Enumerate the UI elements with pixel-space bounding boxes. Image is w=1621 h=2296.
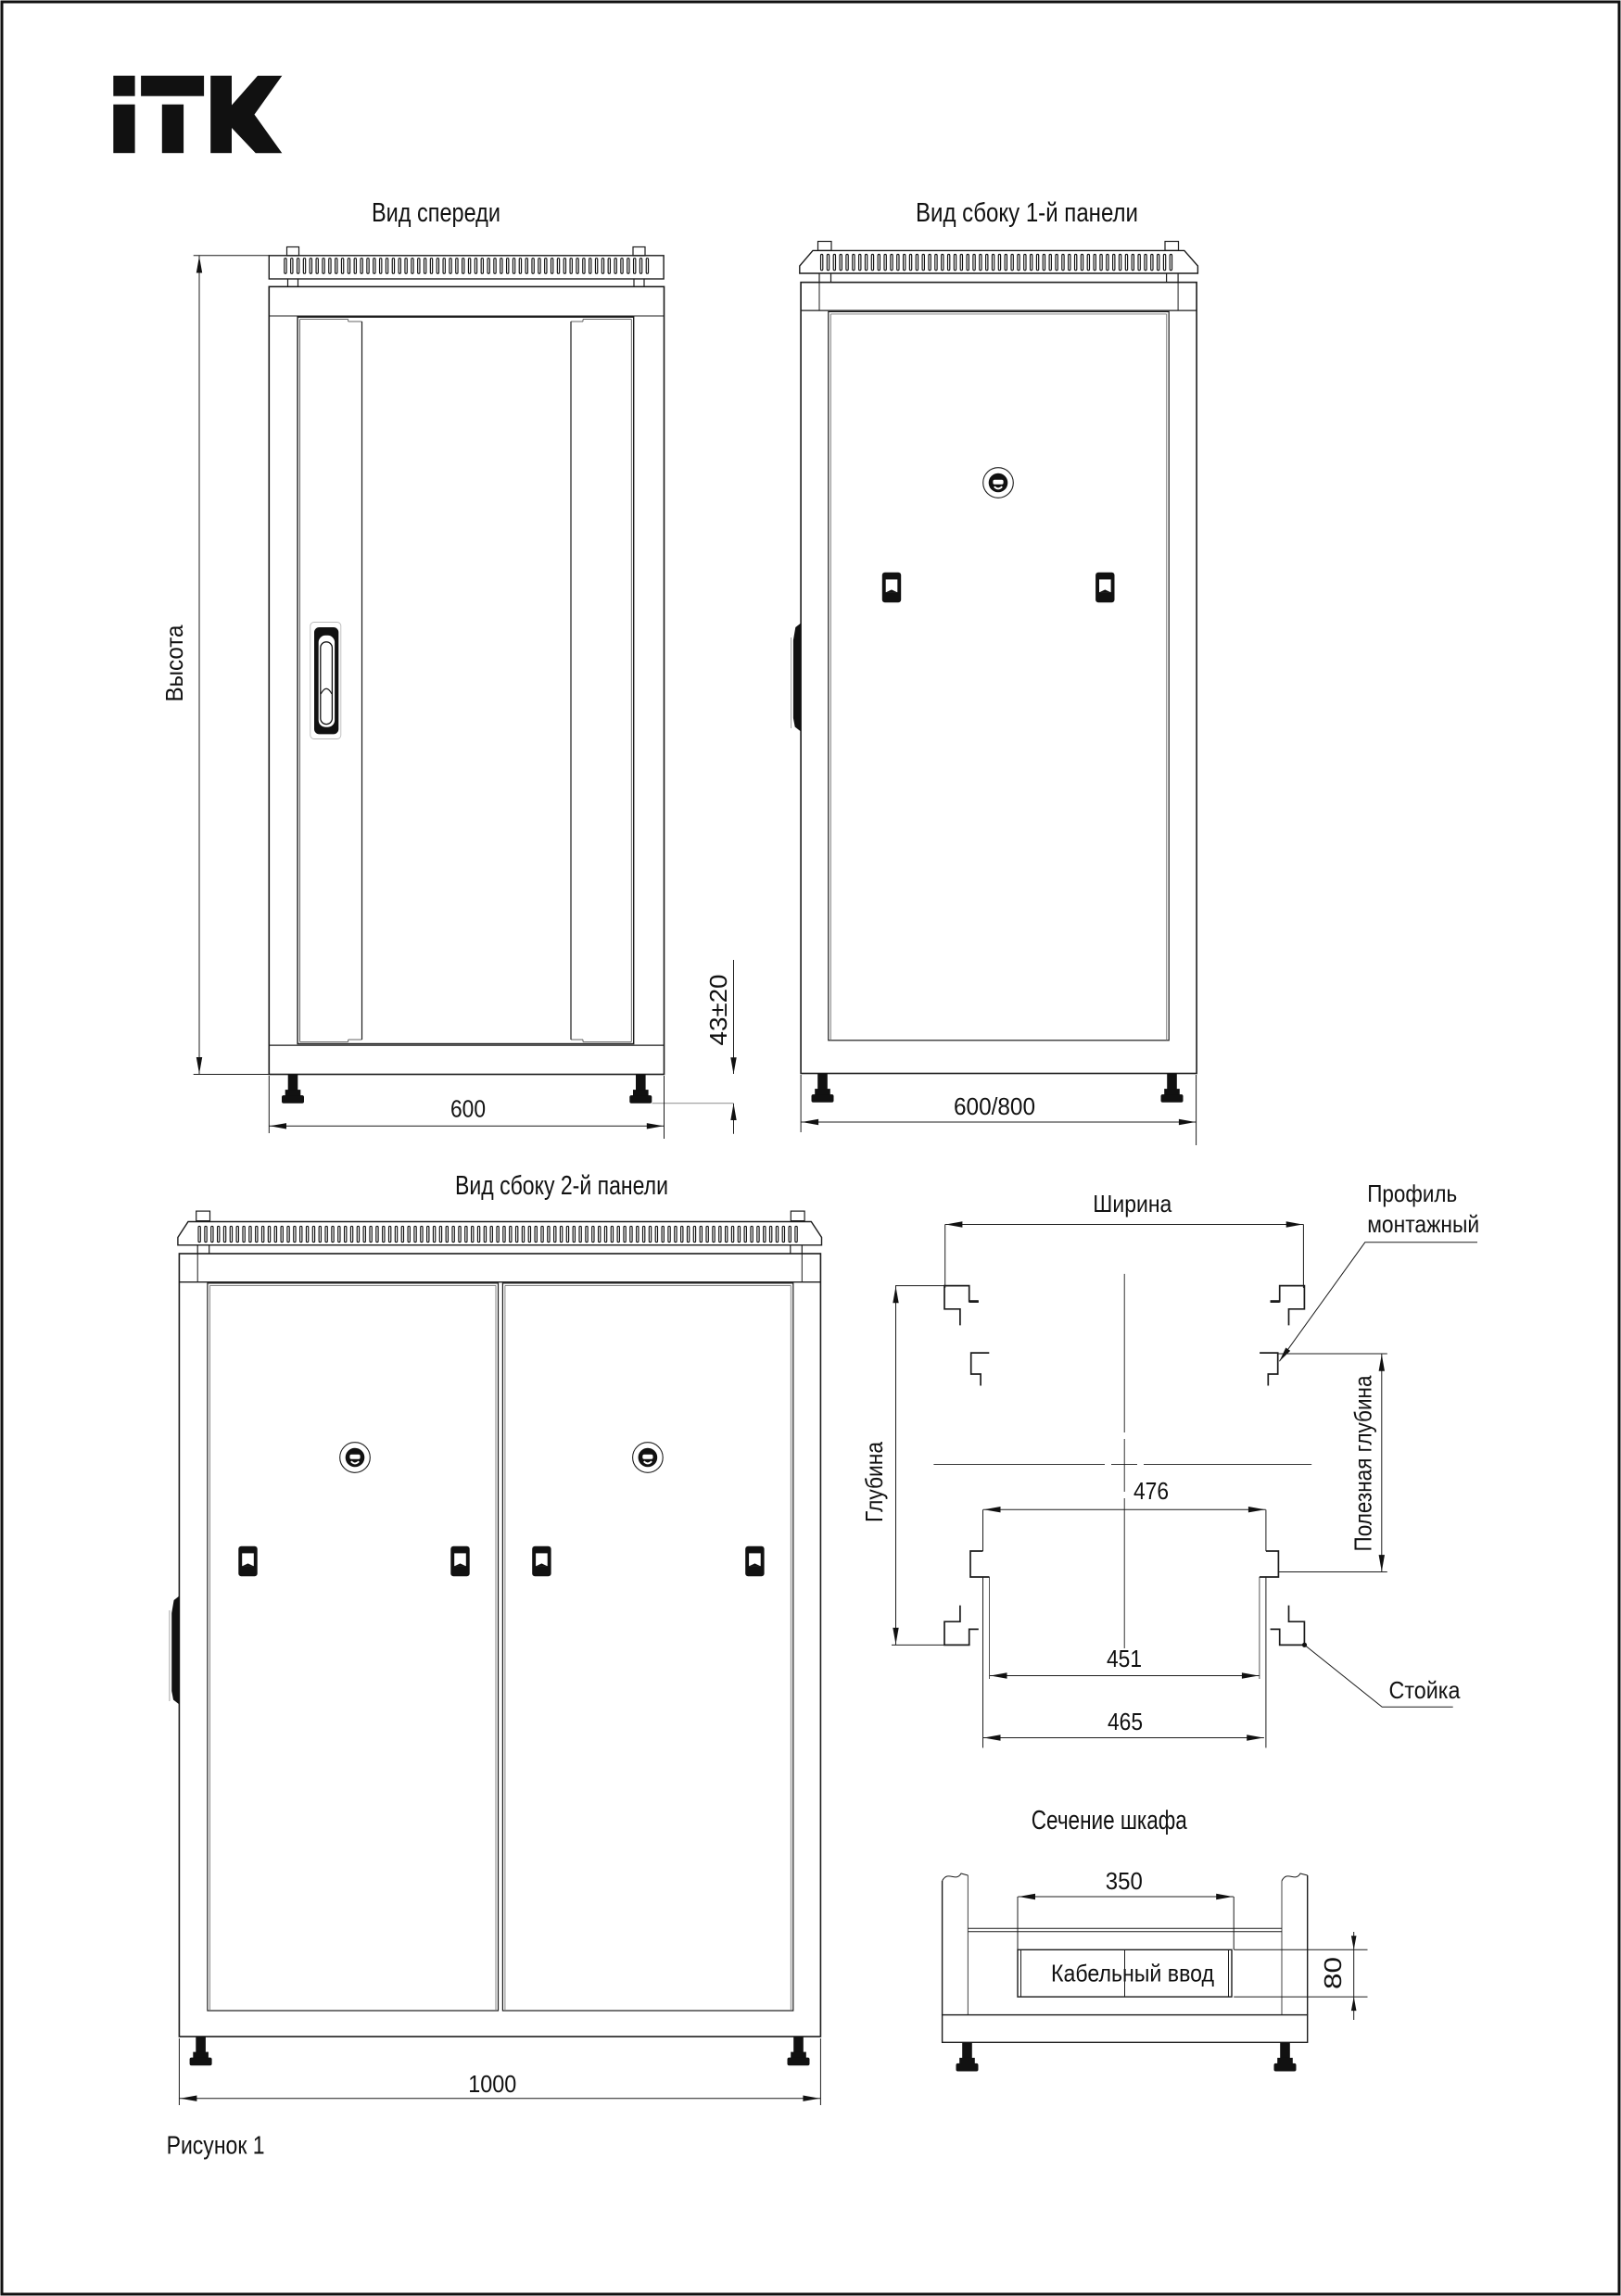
svg-text:Профиль: Профиль	[1367, 1180, 1457, 1207]
svg-text:600/800: 600/800	[954, 1092, 1035, 1120]
svg-text:476: 476	[1133, 1477, 1169, 1505]
svg-text:Вид сбоку 2-й панели: Вид сбоку 2-й панели	[455, 1171, 668, 1201]
svg-text:Глубина: Глубина	[860, 1442, 888, 1522]
svg-text:Сечение шкафа: Сечение шкафа	[1032, 1806, 1188, 1836]
svg-text:монтажный: монтажный	[1367, 1210, 1479, 1238]
svg-text:43±20: 43±20	[704, 975, 732, 1046]
svg-text:465: 465	[1108, 1708, 1143, 1735]
svg-text:Вид сбоку 1-й панели: Вид сбоку 1-й панели	[916, 198, 1138, 228]
svg-text:Полезная глубина: Полезная глубина	[1349, 1375, 1377, 1551]
svg-text:600: 600	[450, 1095, 486, 1123]
svg-text:451: 451	[1107, 1645, 1142, 1672]
svg-text:Рисунок 1: Рисунок 1	[167, 2131, 265, 2160]
svg-text:Высота: Высота	[160, 624, 188, 701]
svg-text:Вид спереди: Вид спереди	[372, 198, 500, 228]
svg-text:Ширина: Ширина	[1093, 1190, 1171, 1217]
svg-text:80: 80	[1319, 1957, 1347, 1989]
svg-text:1000: 1000	[468, 2070, 516, 2098]
svg-text:Стойка: Стойка	[1389, 1676, 1461, 1704]
svg-text:350: 350	[1106, 1867, 1143, 1895]
svg-text:Кабельный ввод: Кабельный ввод	[1051, 1960, 1214, 1987]
